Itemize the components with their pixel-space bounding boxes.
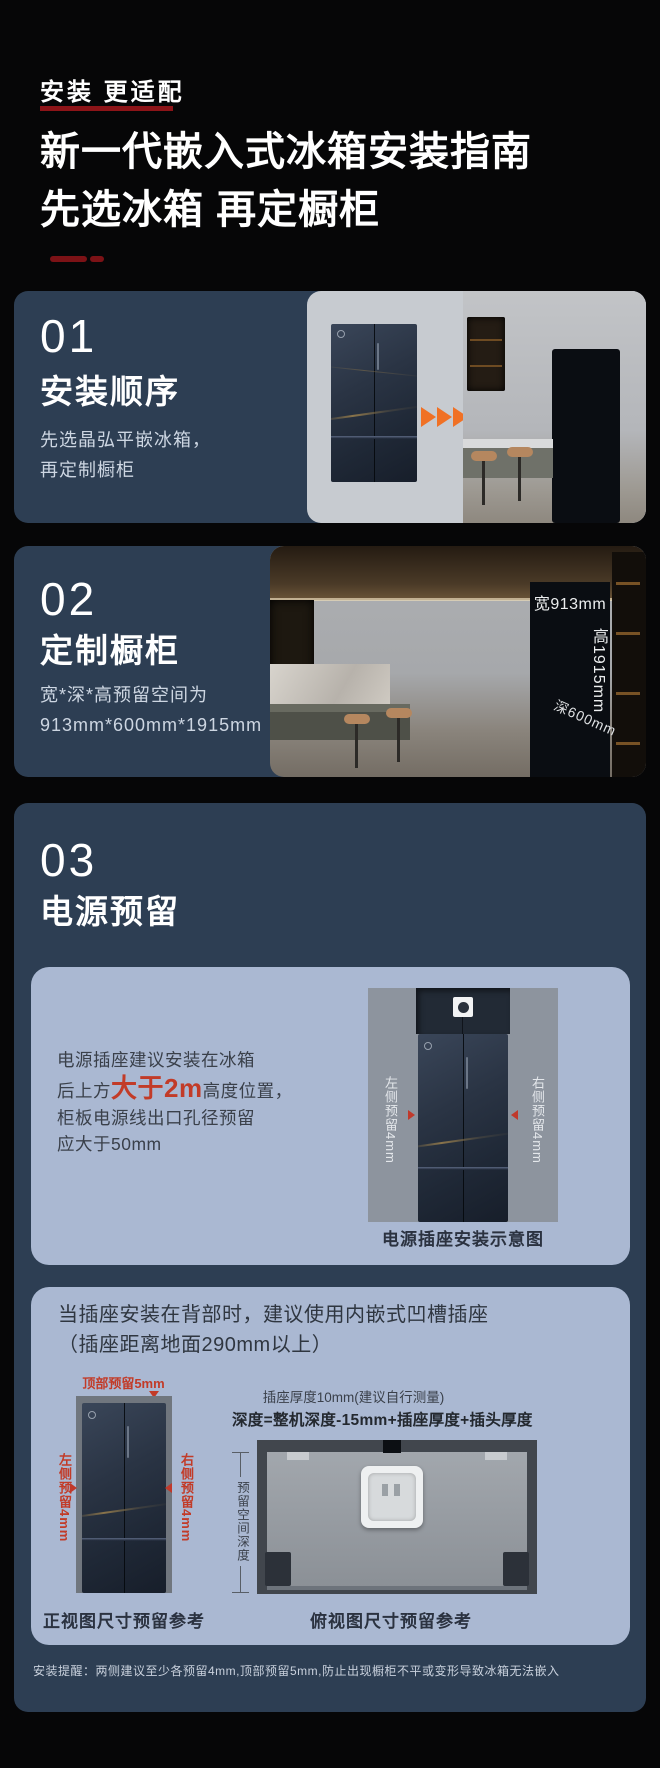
title-dash-long [50,256,87,262]
section-2-body-line2: 913mm*600mm*1915mm [40,710,262,740]
page-title-line2: 先选冰箱 再定橱柜 [40,181,532,239]
section-1-body-line1: 先选晶弘平嵌冰箱， [40,425,211,455]
page: 安装 更适配 新一代嵌入式冰箱安装指南 先选冰箱 再定橱柜 01 安装顺序 先选… [0,0,660,1768]
section-2-kitchen-photo: 宽913mm 高1915mm 深600mm [270,546,646,777]
kitchen-photo [463,291,646,523]
gap-marker-icon [70,1483,77,1493]
arrow-right-icon [421,407,436,427]
socket-instr-line4: 应大于50mm [57,1131,293,1157]
recess-notch [383,1440,401,1453]
bar-stool [507,447,533,457]
socket-diagram-caption: 电源插座安装示意图 [368,1225,558,1250]
section-2-body-line1: 宽*深*高预留空间为 [40,680,262,710]
socket-icon [453,997,473,1017]
page-title-line1: 新一代嵌入式冰箱安装指南 [40,123,532,181]
cabinet-niche [552,349,620,523]
socket-instructions: 电源插座建议安装在冰箱 后上方大于2m高度位置， 柜板电源线出口孔径预留 应大于… [57,1047,293,1157]
socket-recess [416,988,510,1034]
left-gap-label: 左侧预留4mm [381,1076,400,1164]
section-1-illustration [307,291,646,523]
top-view-caption: 俯视图尺寸预留参考 [257,1607,525,1632]
fridge-logo-icon [337,330,345,338]
recess-heading-line2: （插座距离地面290mm以上） [58,1330,489,1360]
marble-backsplash [270,664,390,706]
top-view-diagram [257,1440,537,1594]
section-2-number: 02 [40,572,97,626]
recess-heading: 当插座安装在背部时，建议使用内嵌式凹槽插座 （插座距离地面290mm以上） [58,1300,489,1360]
depth-formula: 深度=整机深度-15mm+插座厚度+插头厚度 [232,1408,533,1430]
section-2-title: 定制橱柜 [40,624,180,672]
hinge [503,1552,529,1586]
section-3-number: 03 [40,833,97,887]
front-left-gap-label: 左侧预留4mm [55,1453,74,1542]
niche-width-label: 宽913mm [530,590,610,614]
section-2-body: 宽*深*高预留空间为 913mm*600mm*1915mm [40,680,262,740]
highlight-2m: 大于2m [111,1073,203,1103]
section-1-title: 安装顺序 [40,365,180,413]
eyebrow-underline [40,106,173,111]
title-dash-short [90,256,104,262]
front-view-caption: 正视图尺寸预留参考 [31,1607,217,1632]
section-1-body: 先选晶弘平嵌冰箱， 再定制橱柜 [40,425,211,485]
section-2-card: 02 定制橱柜 宽*深*高预留空间为 913mm*600mm*1915mm 宽9… [14,546,646,777]
bar-stool [386,708,412,718]
right-gap-label: 右侧预留4mm [528,1076,547,1164]
gap-marker-icon [408,1110,415,1120]
gap-marker-icon [165,1483,172,1493]
recess-heading-line1: 当插座安装在背部时，建议使用内嵌式凹槽插座 [58,1300,489,1330]
socket-plate-icon [361,1466,423,1528]
bar-stool [344,714,370,724]
socket-position-card: 电源插座建议安装在冰箱 后上方大于2m高度位置， 柜板电源线出口孔径预留 应大于… [31,967,630,1265]
bar-stool [471,451,497,461]
recessed-socket-card: 当插座安装在背部时，建议使用内嵌式凹槽插座 （插座距离地面290mm以上） 顶部… [31,1287,630,1645]
arrow-right-icon [437,407,452,427]
wine-cabinet [467,317,505,391]
front-top-gap-label: 顶部预留5mm [61,1373,186,1392]
socket-diagram: 左侧预留4mm 右侧预留4mm [368,988,558,1222]
section-3-title: 电源预留 [40,885,180,933]
socket-instr-line1: 电源插座建议安装在冰箱 [57,1047,293,1073]
fridge-logo-icon [424,1042,432,1050]
eyebrow-text: 安装 更适配 [40,72,185,107]
fridge-image [331,324,417,482]
depth-space-label: 预留空间深度 [233,1477,252,1566]
section-1-card: 01 安装顺序 先选晶弘平嵌冰箱， 再定制橱柜 [14,291,646,523]
power-cord [462,1017,463,1034]
socket-instr-line3: 柜板电源线出口孔径预留 [57,1105,293,1131]
arrow-right-icons [421,407,468,427]
section-1-body-line2: 再定制橱柜 [40,455,211,485]
socket-instr-line2: 后上方大于2m高度位置， [57,1075,293,1104]
section-1-number: 01 [40,309,97,363]
section-3-card: 03 电源预留 电源插座建议安装在冰箱 后上方大于2m高度位置， 柜板电源线出口… [14,803,646,1712]
fridge-diagram [418,1034,508,1222]
front-right-gap-label: 右侧预留4mm [177,1453,196,1542]
hinge [265,1552,291,1586]
socket-thickness-note: 插座厚度10mm(建议自行测量) [231,1386,476,1406]
niche-height-label: 高1915mm [586,628,610,713]
tall-shelf [612,552,646,777]
front-view-fridge [82,1403,166,1593]
page-title: 新一代嵌入式冰箱安装指南 先选冰箱 再定橱柜 [40,123,532,239]
install-footnote: 安装提醒：两侧建议至少各预留4mm,顶部预留5mm,防止出现橱柜不平或变形导致冰… [33,1662,560,1679]
gap-marker-icon [511,1110,518,1120]
fridge-logo-icon [88,1411,96,1419]
